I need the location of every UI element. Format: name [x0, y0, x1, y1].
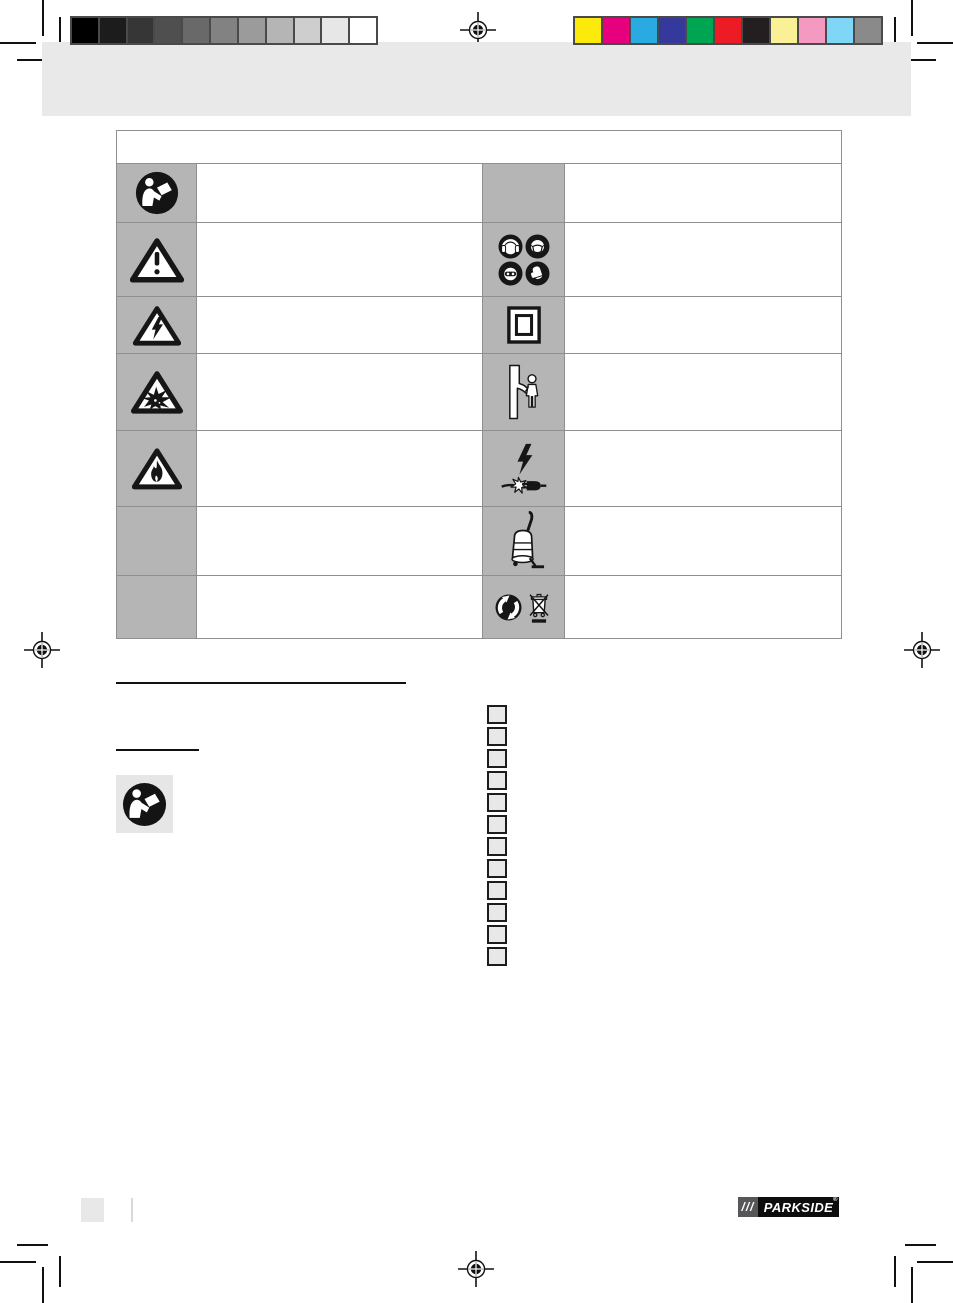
symbol-cell: [482, 431, 564, 506]
registered-trademark-icon: ®: [833, 1197, 838, 1203]
table-row: [117, 163, 841, 222]
calibration-swatch: [72, 18, 98, 43]
table-row: [117, 222, 841, 296]
list-marker-column: [487, 705, 507, 969]
symbol-description: [564, 223, 841, 296]
list-marker-box: [487, 705, 507, 724]
dust-mask-icon: [525, 234, 550, 259]
list-marker-box: [487, 815, 507, 834]
table-header-cell: [117, 131, 841, 163]
list-marker-box: [487, 881, 507, 900]
list-marker-box: [487, 947, 507, 966]
header-band: [42, 42, 911, 116]
symbol-cell-empty: [117, 507, 196, 575]
symbol-description: [564, 164, 841, 222]
symbol-cell: [482, 576, 564, 638]
read-manual-icon: [121, 781, 168, 828]
symbol-cell: [117, 223, 196, 296]
explosion-warning-icon: [131, 369, 183, 415]
registration-mark-icon: [24, 632, 60, 668]
trim-mark: [911, 1267, 913, 1303]
symbol-cell: [117, 354, 196, 430]
trim-mark: [42, 0, 44, 36]
section-title-rule: [116, 682, 406, 684]
symbol-cell: [482, 297, 564, 353]
calibration-swatch: [713, 18, 741, 43]
page-number-box: [81, 1198, 104, 1222]
symbol-description: [196, 297, 482, 353]
table-header-row: [117, 131, 841, 163]
symbol-description: [564, 576, 841, 638]
weee-crossed-out-bin-icon: [526, 590, 552, 624]
calibration-swatch: [126, 18, 154, 43]
safety-goggles-icon: [498, 261, 523, 286]
table-row: [117, 506, 841, 575]
symbol-cell: [482, 507, 564, 575]
calibration-swatch: [265, 18, 293, 43]
trim-mark: [17, 1244, 48, 1246]
calibration-swatch: [769, 18, 797, 43]
list-marker-box: [487, 793, 507, 812]
calibration-swatch: [320, 18, 348, 43]
trim-mark: [59, 1256, 61, 1287]
trim-mark: [917, 1261, 953, 1263]
calibration-swatch: [575, 18, 601, 43]
list-marker-box: [487, 749, 507, 768]
symbol-description: [564, 297, 841, 353]
list-marker-box: [487, 771, 507, 790]
color-calibration-bar: [573, 16, 883, 45]
calibration-swatch: [825, 18, 853, 43]
registration-mark-icon: [458, 1251, 494, 1287]
calibration-swatch: [853, 18, 881, 43]
calibration-swatch: [741, 18, 769, 43]
trim-mark: [0, 1261, 36, 1263]
ppe-protection-icons: [498, 234, 550, 286]
symbol-description: [196, 223, 482, 296]
grayscale-calibration-bar: [70, 16, 378, 45]
registration-mark-icon: [904, 632, 940, 668]
calibration-swatch: [153, 18, 181, 43]
calibration-swatch: [237, 18, 265, 43]
protective-gloves-icon: [525, 261, 550, 286]
list-marker-box: [487, 859, 507, 878]
table-row: [117, 575, 841, 638]
calibration-swatch: [98, 18, 126, 43]
list-marker-box: [487, 903, 507, 922]
calibration-swatch: [293, 18, 321, 43]
general-warning-icon: [130, 236, 184, 284]
symbol-cell: [482, 354, 564, 430]
double-insulation-icon: [507, 306, 541, 344]
calibration-swatch: [181, 18, 209, 43]
table-row: [117, 353, 841, 430]
symbol-cell: [117, 297, 196, 353]
calibration-swatch: [797, 18, 825, 43]
read-manual-icon: [134, 170, 180, 216]
list-marker-box: [487, 925, 507, 944]
symbol-cell: [117, 164, 196, 222]
ear-protection-icon: [498, 234, 523, 259]
calibration-swatch: [685, 18, 713, 43]
symbol-description: [196, 354, 482, 430]
calibration-swatch: [348, 18, 376, 43]
table-row: [117, 296, 841, 353]
symbol-description: [564, 431, 841, 506]
brand-name: PARKSIDE: [764, 1200, 833, 1215]
trim-mark: [911, 0, 913, 36]
safety-symbols-table: [116, 130, 842, 639]
symbol-description: [196, 576, 482, 638]
trim-mark: [0, 42, 36, 44]
read-manual-block: [116, 775, 173, 833]
logo-wordmark: PARKSIDE ®: [758, 1197, 839, 1217]
damaged-power-cable-icon: [500, 443, 548, 495]
trim-mark: [894, 1256, 896, 1287]
subheading-rule: [116, 749, 199, 751]
symbol-description: [196, 507, 482, 575]
trim-mark: [42, 1267, 44, 1303]
calibration-swatch: [209, 18, 237, 43]
logo-slashes: ///: [738, 1197, 758, 1217]
symbol-description: [564, 507, 841, 575]
symbol-description: [196, 164, 482, 222]
fire-warning-icon: [132, 446, 182, 491]
table-row: [117, 430, 841, 506]
calibration-swatch: [657, 18, 685, 43]
trim-mark: [917, 42, 953, 44]
symbol-cell: [117, 431, 196, 506]
calibration-swatch: [629, 18, 657, 43]
calibration-swatch: [601, 18, 629, 43]
symbol-cell-empty: [117, 576, 196, 638]
parkside-logo: /// PARKSIDE ®: [738, 1197, 839, 1217]
vacuum-cleaner-icon: [503, 511, 545, 571]
green-dot-recycling-icon: [495, 594, 522, 621]
list-marker-box: [487, 837, 507, 856]
list-marker-box: [487, 727, 507, 746]
electric-shock-warning-icon: [133, 304, 181, 347]
keep-children-away-icon: [507, 364, 541, 420]
symbol-cell-empty: [482, 164, 564, 222]
symbol-description: [564, 354, 841, 430]
manual-page: /// PARKSIDE ®: [0, 0, 953, 1303]
footer-divider-line: [131, 1198, 133, 1222]
trim-mark: [905, 1244, 936, 1246]
symbol-description: [196, 431, 482, 506]
symbol-cell: [482, 223, 564, 296]
